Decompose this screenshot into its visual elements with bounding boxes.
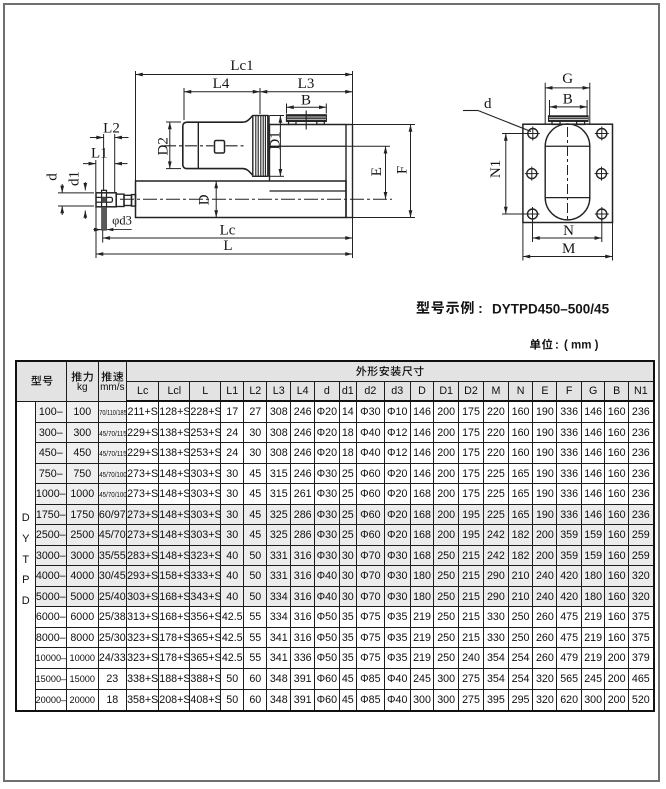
svg-text:d: d xyxy=(45,173,61,181)
svg-text:F: F xyxy=(394,166,410,174)
svg-text:L3: L3 xyxy=(298,76,315,92)
svg-text:L1: L1 xyxy=(91,146,108,162)
svg-text:N: N xyxy=(563,223,574,239)
svg-text:B: B xyxy=(301,93,311,109)
svg-text:D1: D1 xyxy=(268,131,284,149)
svg-text:B: B xyxy=(563,91,573,107)
svg-text:N1: N1 xyxy=(488,160,504,178)
svg-text:45/70/100: 45/70/100 xyxy=(99,490,127,499)
svg-text:70/110/185: 70/110/185 xyxy=(99,408,127,417)
svg-text:( mm ): ( mm ) xyxy=(564,340,599,352)
svg-text:L4: L4 xyxy=(213,76,230,92)
svg-text:φd3: φd3 xyxy=(112,214,132,228)
svg-text::: : xyxy=(478,300,483,316)
svg-text:Lc1: Lc1 xyxy=(230,58,253,74)
svg-text:D2: D2 xyxy=(156,137,172,155)
svg-text:L: L xyxy=(223,238,232,254)
svg-text:45/70/115: 45/70/115 xyxy=(99,429,127,438)
svg-text:Lc: Lc xyxy=(220,223,236,239)
svg-text:d: d xyxy=(484,96,492,112)
svg-text:45/70/115: 45/70/115 xyxy=(99,449,127,458)
svg-text::: : xyxy=(555,340,559,352)
svg-text:D: D xyxy=(197,194,213,205)
svg-text:G: G xyxy=(562,71,573,87)
svg-text:M: M xyxy=(562,241,575,257)
svg-text:DYTPD450–500/45: DYTPD450–500/45 xyxy=(492,302,610,317)
svg-text:45/70/100: 45/70/100 xyxy=(99,470,127,479)
svg-text:L2: L2 xyxy=(103,121,120,137)
svg-text:d1: d1 xyxy=(66,171,82,186)
svg-text:E: E xyxy=(369,167,385,176)
